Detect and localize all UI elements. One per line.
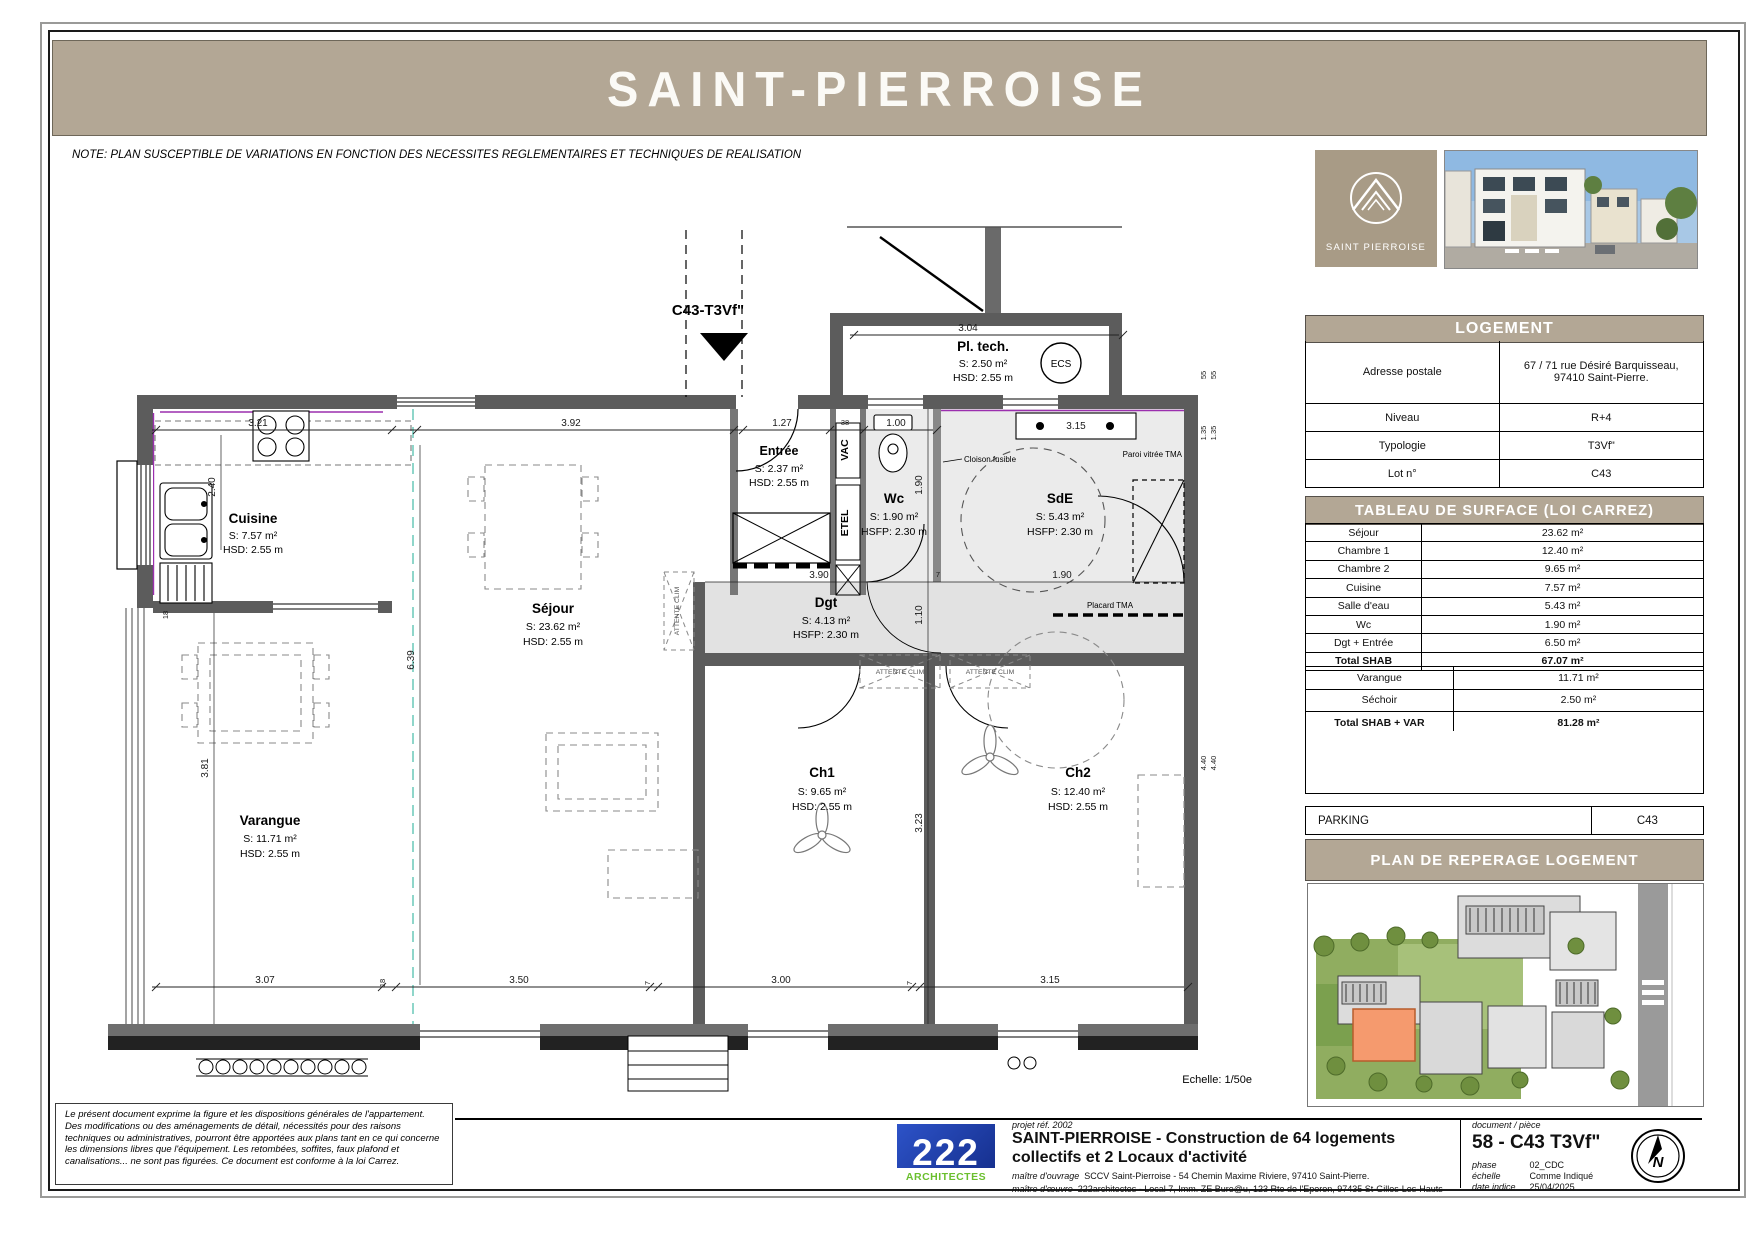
row-label: Wc xyxy=(1306,616,1422,633)
paroi-label: Paroi vitrée TMA xyxy=(1123,450,1183,459)
svg-text:6.39: 6.39 xyxy=(406,650,417,670)
parking-row: PARKING C43 xyxy=(1305,806,1704,835)
svg-text:HSD: 2.55 m: HSD: 2.55 m xyxy=(223,544,283,556)
echelle-value: Comme Indiqué xyxy=(1530,1171,1608,1182)
row-value: R+4 xyxy=(1500,404,1703,431)
row-label: Chambre 1 xyxy=(1306,542,1422,559)
svg-text:55: 55 xyxy=(1209,371,1218,379)
mountain-logo-icon: SAINT PIERROISE xyxy=(1315,150,1437,267)
svg-text:3.50: 3.50 xyxy=(509,975,529,986)
table-row: Adresse postale 67 / 71 rue Désiré Barqu… xyxy=(1306,341,1703,403)
svg-text:SdE: SdE xyxy=(1047,491,1073,506)
entry-arrow-icon xyxy=(700,333,748,361)
table-row: Salle d'eau5.43 m² xyxy=(1306,597,1703,615)
phase-value: 02_CDC xyxy=(1530,1160,1608,1171)
svg-text:S: 12.40 m²: S: 12.40 m² xyxy=(1051,786,1106,798)
svg-text:38: 38 xyxy=(841,418,849,427)
svg-text:3.23: 3.23 xyxy=(914,813,925,833)
row-value: 2.50 m² xyxy=(1454,690,1703,712)
row-label: Dgt + Entrée xyxy=(1306,634,1422,651)
svg-text:3.92: 3.92 xyxy=(561,418,581,429)
svg-text:S: 2.50 m²: S: 2.50 m² xyxy=(959,358,1008,370)
svg-text:Ch2: Ch2 xyxy=(1065,765,1091,780)
table-row: Chambre 29.65 m² xyxy=(1306,560,1703,578)
table-row: Séchoir2.50 m² xyxy=(1306,689,1703,712)
surface-table-annex: Varangue11.71 m² Séchoir2.50 m² Total SH… xyxy=(1305,666,1704,735)
project-title: SAINT-PIERROISE xyxy=(607,59,1152,117)
date-label: date indice xyxy=(1472,1182,1530,1193)
svg-text:HSD: 2.55 m: HSD: 2.55 m xyxy=(749,477,809,489)
document-info: document / pièce 58 - C43 T3Vf" phase02_… xyxy=(1472,1120,1622,1193)
document-number: 58 - C43 T3Vf" xyxy=(1472,1132,1622,1154)
row-label: Salle d'eau xyxy=(1306,598,1422,615)
row-value: 9.65 m² xyxy=(1422,561,1703,578)
floor-plan: C43-T3Vf" ECS xyxy=(48,135,1293,1100)
svg-text:4.40: 4.40 xyxy=(1199,756,1208,771)
logement-section-header: LOGEMENT xyxy=(1305,315,1704,343)
attente-clim-label: ATTENTE CLIM xyxy=(966,669,1015,676)
svg-text:3.15: 3.15 xyxy=(1040,975,1060,986)
surface-table: Séjour23.62 m² Chambre 112.40 m² Chambre… xyxy=(1305,523,1704,671)
svg-text:1.27: 1.27 xyxy=(772,418,792,429)
row-label: Varangue xyxy=(1306,667,1454,689)
attente-clim-label: ATTENTE CLIM xyxy=(674,586,681,635)
svg-text:S: 1.90 m²: S: 1.90 m² xyxy=(870,511,919,523)
svg-text:S: 2.37 m²: S: 2.37 m² xyxy=(755,463,804,475)
row-value: 67 / 71 rue Désiré Barquisseau, 97410 Sa… xyxy=(1500,341,1703,403)
svg-text:S: 5.43 m²: S: 5.43 m² xyxy=(1036,511,1085,523)
svg-text:7: 7 xyxy=(905,981,914,985)
svg-text:3.00: 3.00 xyxy=(771,975,791,986)
row-label: Séchoir xyxy=(1306,690,1454,712)
svg-text:18: 18 xyxy=(378,979,387,987)
svg-text:1.90: 1.90 xyxy=(914,475,925,495)
svg-text:HSD: 2.55 m: HSD: 2.55 m xyxy=(953,372,1013,384)
moa-label: maître d'ouvrage xyxy=(1012,1171,1079,1181)
row-label: Niveau xyxy=(1306,404,1500,431)
plan-sheet: SAINT-PIERROISE NOTE: PLAN SUSCEPTIBLE D… xyxy=(0,0,1754,1241)
svg-text:2.40: 2.40 xyxy=(207,477,218,497)
svg-text:1.35: 1.35 xyxy=(1199,426,1208,441)
cloison-label: Cloison fusible xyxy=(964,455,1017,464)
svg-text:4.40: 4.40 xyxy=(1209,756,1218,771)
svg-text:S: 23.62 m²: S: 23.62 m² xyxy=(526,621,581,633)
svg-text:3.07: 3.07 xyxy=(255,975,275,986)
ecs-label: ECS xyxy=(1051,359,1072,370)
table-row: Typologie T3Vf" xyxy=(1306,431,1703,459)
reperage-section-header: PLAN DE REPERAGE LOGEMENT xyxy=(1305,839,1704,881)
table-row: Varangue11.71 m² xyxy=(1306,667,1703,689)
north-arrow-icon: N xyxy=(1628,1126,1688,1186)
project-title-line2: collectifs et 2 Locaux d'activité xyxy=(1012,1149,1452,1168)
logement-title: LOGEMENT xyxy=(1455,320,1554,338)
logo-architectes-text: ARCHITECTES xyxy=(897,1171,995,1183)
table-row: Niveau R+4 xyxy=(1306,403,1703,431)
date-value: 25/04/2025 xyxy=(1530,1182,1608,1193)
svg-text:3.90: 3.90 xyxy=(809,570,829,581)
parking-label: PARKING xyxy=(1306,807,1591,834)
row-label: Typologie xyxy=(1306,432,1500,459)
svg-text:3.04: 3.04 xyxy=(958,323,978,334)
svg-text:Dgt: Dgt xyxy=(815,595,838,610)
svg-text:55: 55 xyxy=(1199,371,1208,379)
row-label: Chambre 2 xyxy=(1306,561,1422,578)
echelle-label: échelle xyxy=(1472,1171,1530,1182)
svg-text:Pl. tech.: Pl. tech. xyxy=(957,339,1009,354)
project-title-line1: SAINT-PIERROISE - Construction de 64 log… xyxy=(1012,1130,1452,1149)
architect-logo: 222 ARCHITECTES xyxy=(897,1124,995,1183)
logo-222-icon: 222 xyxy=(897,1124,995,1168)
svg-text:S: 7.57 m²: S: 7.57 m² xyxy=(229,530,278,542)
svg-text:Séjour: Séjour xyxy=(532,601,575,616)
row-value: 5.43 m² xyxy=(1422,598,1703,615)
surface-section-header: TABLEAU DE SURFACE (LOI CARREZ) xyxy=(1305,496,1704,525)
project-photo xyxy=(1444,150,1698,269)
legal-disclaimer: Le présent document exprime la figure et… xyxy=(55,1103,453,1185)
titleblock-divider xyxy=(1460,1118,1461,1188)
svg-text:HSD: 2.55 m: HSD: 2.55 m xyxy=(240,848,300,860)
svg-text:3.21: 3.21 xyxy=(248,418,268,429)
moa-value: SCCV Saint-Pierroise - 54 Chemin Maxime … xyxy=(1084,1171,1369,1181)
site-plan-image xyxy=(1308,884,1703,1106)
parking-value: C43 xyxy=(1591,807,1703,834)
svg-text:Varangue: Varangue xyxy=(240,813,301,828)
svg-text:1.90: 1.90 xyxy=(1052,570,1072,581)
row-value: T3Vf" xyxy=(1500,432,1703,459)
moe-line: maître d'œuvre222architectes - Local 7, … xyxy=(1012,1184,1452,1194)
svg-text:18: 18 xyxy=(161,611,170,619)
svg-text:HSFP: 2.30 m: HSFP: 2.30 m xyxy=(793,629,859,641)
svg-text:HSFP: 2.30 m: HSFP: 2.30 m xyxy=(1027,526,1093,538)
svg-text:S: 9.65 m²: S: 9.65 m² xyxy=(798,786,847,798)
svg-text:HSD: 2.55 m: HSD: 2.55 m xyxy=(523,636,583,648)
svg-text:1.35: 1.35 xyxy=(1209,426,1218,441)
project-title-band: SAINT-PIERROISE xyxy=(52,40,1707,136)
north-letter: N xyxy=(1653,1154,1665,1171)
svg-text:SAINT PIERROISE: SAINT PIERROISE xyxy=(1326,242,1426,253)
surface-title: TABLEAU DE SURFACE (LOI CARREZ) xyxy=(1355,503,1654,519)
svg-text:3.81: 3.81 xyxy=(200,758,211,778)
svg-text:HSD: 2.55 m: HSD: 2.55 m xyxy=(1048,801,1108,813)
project-ref: projet réf. 2002 xyxy=(1012,1120,1452,1130)
svg-text:HSFP: 2.30 m: HSFP: 2.30 m xyxy=(861,526,927,538)
attente-clim-label: ATTENTE CLIM xyxy=(876,669,925,676)
table-row: Wc1.90 m² xyxy=(1306,615,1703,633)
street-render-image xyxy=(1445,151,1697,268)
svg-text:1.00: 1.00 xyxy=(886,418,906,429)
table-row: Lot n° C43 xyxy=(1306,459,1703,487)
placard-label: Placard TMA xyxy=(1087,601,1134,610)
row-value: 6.50 m² xyxy=(1422,634,1703,651)
svg-text:S: 11.71 m²: S: 11.71 m² xyxy=(243,833,297,845)
row-value: 11.71 m² xyxy=(1454,667,1703,689)
moe-value: 222architectes - Local 7, Imm. ZE Bure@u… xyxy=(1078,1184,1443,1194)
logement-table: Adresse postale 67 / 71 rue Désiré Barqu… xyxy=(1305,341,1704,488)
phase-label: phase xyxy=(1472,1160,1530,1171)
svg-text:3.15: 3.15 xyxy=(1066,421,1086,432)
table-row: Dgt + Entrée6.50 m² xyxy=(1306,633,1703,651)
scale-label: Echelle: 1/50e xyxy=(1182,1074,1252,1086)
row-value: C43 xyxy=(1500,460,1703,487)
varangue-railing xyxy=(126,608,144,1024)
row-label: Lot n° xyxy=(1306,460,1500,487)
entry-axis: C43-T3Vf" xyxy=(672,230,748,397)
svg-text:7: 7 xyxy=(936,570,940,579)
svg-text:1.10: 1.10 xyxy=(914,605,925,625)
row-label: Adresse postale xyxy=(1306,341,1500,403)
table-row: Cuisine7.57 m² xyxy=(1306,578,1703,596)
site-location-plan xyxy=(1307,883,1704,1107)
svg-text:7: 7 xyxy=(643,981,652,985)
svg-text:Wc: Wc xyxy=(884,491,905,506)
vac-label: VAC xyxy=(839,439,851,461)
empty-table-extension xyxy=(1305,731,1704,794)
svg-text:S: 4.13 m²: S: 4.13 m² xyxy=(802,615,851,627)
svg-text:Ch1: Ch1 xyxy=(809,765,835,780)
table-row: Chambre 112.40 m² xyxy=(1306,541,1703,559)
table-row: Séjour23.62 m² xyxy=(1306,524,1703,541)
svg-text:Entrée: Entrée xyxy=(760,444,799,458)
svg-text:Cuisine: Cuisine xyxy=(229,511,278,526)
row-label: Cuisine xyxy=(1306,579,1422,596)
project-titleblock: projet réf. 2002 SAINT-PIERROISE - Const… xyxy=(1012,1120,1452,1194)
kitchen-fixtures xyxy=(155,411,411,603)
moe-label: maître d'œuvre xyxy=(1012,1184,1073,1194)
row-value: 23.62 m² xyxy=(1422,524,1703,541)
document-meta-table: phase02_CDC échelleComme Indiqué date in… xyxy=(1472,1160,1607,1193)
unit-ref-label: C43-T3Vf" xyxy=(672,302,744,319)
row-value: 7.57 m² xyxy=(1422,579,1703,596)
svg-text:HSD: 2.55 m: HSD: 2.55 m xyxy=(792,801,852,813)
document-label: document / pièce xyxy=(1472,1120,1622,1130)
ceiling-fan-ch2 xyxy=(959,725,1020,778)
row-label: Séjour xyxy=(1306,524,1422,541)
reperage-title: PLAN DE REPERAGE LOGEMENT xyxy=(1370,852,1638,869)
row-value: 12.40 m² xyxy=(1422,542,1703,559)
moa-line: maître d'ouvrageSCCV Saint-Pierroise - 5… xyxy=(1012,1171,1452,1181)
brand-logo-tile: SAINT PIERROISE xyxy=(1315,150,1437,267)
etel-label: ETEL xyxy=(839,509,851,536)
logo-222-text: 222 xyxy=(912,1138,980,1168)
row-value: 1.90 m² xyxy=(1422,616,1703,633)
